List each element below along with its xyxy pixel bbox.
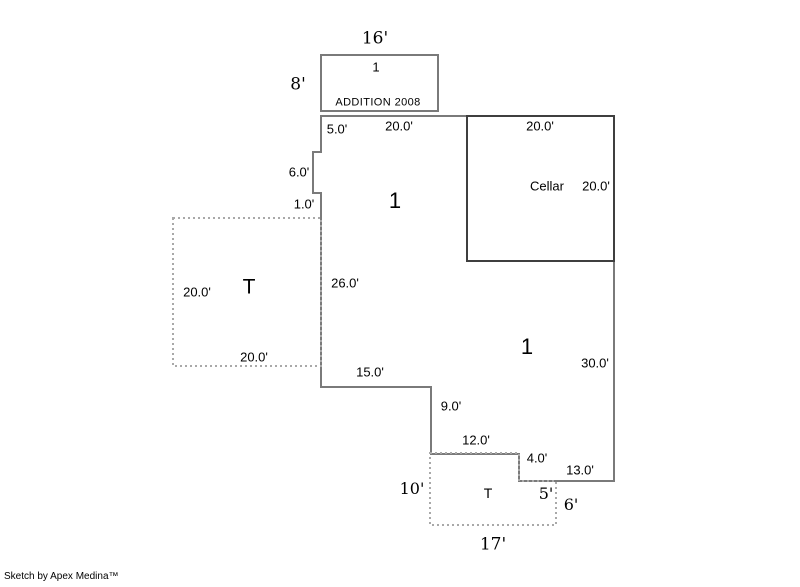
- main-area-number-upper: 1: [389, 190, 401, 212]
- addition-left-height-label: 8': [290, 77, 306, 94]
- sketch-credit: Sketch by Apex Medina™: [4, 571, 119, 582]
- dim-notch-6ft: 6.0': [289, 166, 310, 179]
- dim-right-lower-30ft: 30.0': [581, 357, 609, 370]
- dim-step-down-9ft: 9.0': [441, 400, 462, 413]
- addition-area-number: 1: [372, 61, 379, 74]
- dim-step-down-4ft: 4.0': [527, 452, 548, 465]
- floorplan-linework: [0, 0, 800, 587]
- cellar-top-width-label: 20.0': [526, 120, 554, 133]
- addition-top-width-label: 16': [362, 31, 388, 48]
- dim-top-west-20ft: 20.0': [385, 120, 413, 133]
- left-patio-left-height-label: 20.0': [183, 286, 211, 299]
- dim-left-lower-26ft: 26.0': [331, 277, 359, 290]
- addition-caption: ADDITION 2008: [335, 98, 420, 109]
- main-building-outline: [313, 116, 614, 481]
- main-area-number-lower: 1: [521, 336, 533, 358]
- cellar-right-height-label: 20.0': [582, 180, 610, 193]
- dim-left-top-5ft: 5.0': [327, 123, 348, 136]
- bottom-patio-right-height-label: 6': [564, 497, 579, 513]
- bottom-patio-bottom-width-label: 17': [480, 537, 506, 554]
- floorplan-canvas: 16' 1 8' ADDITION 2008 5.0' 20.0' 6.0' 1…: [0, 0, 800, 587]
- dim-notch-jog-1ft: 1.0': [294, 198, 315, 211]
- bottom-patio-step-width-label: 5': [539, 486, 554, 502]
- dim-bottom-east-13ft: 13.0': [566, 464, 594, 477]
- left-patio-bottom-width-label: 20.0': [240, 351, 268, 364]
- dim-bottom-west-15ft: 15.0': [356, 366, 384, 379]
- dim-step-across-12ft: 12.0': [462, 434, 490, 447]
- left-patio-label: T: [243, 277, 256, 298]
- cellar-name-label: Cellar: [530, 180, 564, 193]
- bottom-patio-label: T: [484, 486, 493, 500]
- bottom-patio-left-height-label: 10': [400, 481, 425, 497]
